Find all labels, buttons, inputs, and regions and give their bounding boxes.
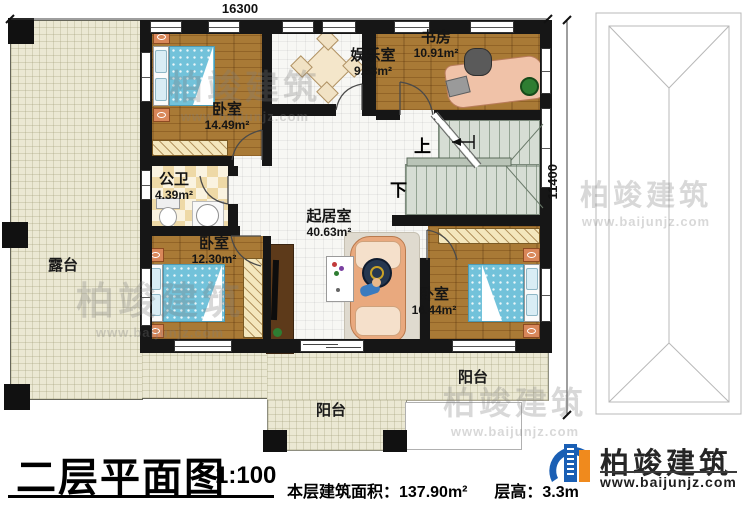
- room-label-bedroom-bl: 卧室 12.30m²: [176, 236, 252, 266]
- room-label-living: 起居室 40.63m²: [291, 209, 367, 239]
- floor-plan-canvas: 16300 11400 卧室 14.49m² 娱乐室 9.63m² 书房 10.…: [0, 0, 750, 505]
- stairs-up-label: 上: [414, 132, 431, 157]
- room-label-study: 书房 10.91m²: [398, 30, 474, 60]
- terrace-label: 露台: [48, 254, 78, 275]
- room-label-bedroom-tl: 卧室 14.49m²: [189, 102, 265, 132]
- stairs-down-label: 下: [390, 176, 407, 201]
- dimension-width: 16300: [200, 1, 280, 16]
- plan-scale: 1:100: [215, 462, 276, 490]
- plan-notes: 本层建筑面积：137.90m² 层高：3.3m: [287, 478, 579, 502]
- area-note: 本层建筑面积：137.90m²: [287, 484, 468, 501]
- dimension-height: 11400: [545, 164, 560, 199]
- brand-logo-icon: [538, 438, 600, 496]
- brand-url: www.baijunjz.com: [600, 471, 737, 490]
- title-underline: [8, 495, 274, 498]
- room-label-bathroom: 公卫 4.39m²: [136, 172, 212, 202]
- balcony-bottom-label: 阳台: [316, 399, 346, 420]
- room-label-bedroom-br: 卧室 16.44m²: [396, 287, 472, 317]
- balcony-right-label: 阳台: [458, 366, 488, 387]
